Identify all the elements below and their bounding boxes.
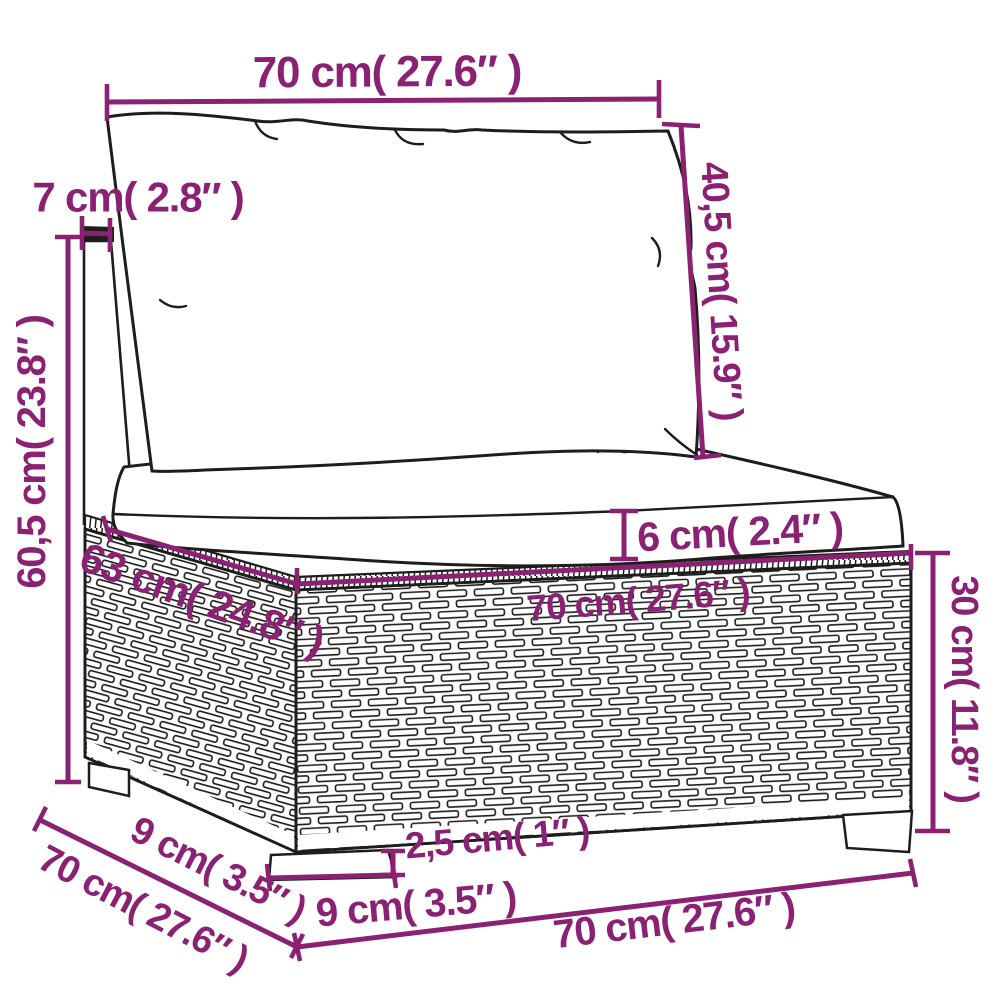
dim-back-height: 60,5 cm( 23.8″ ) bbox=[10, 237, 81, 782]
dim-back-cushion-height-label: 40,5 cm( 15.9″ ) bbox=[692, 161, 750, 422]
dim-base-height-label: 30 cm( 11.8″ ) bbox=[943, 575, 985, 802]
dim-back-height-label: 60,5 cm( 23.8″ ) bbox=[10, 315, 54, 588]
dimension-diagram-page: 70 cm( 27.6″ ) 7 cm( 2.8″ ) 40,5 cm( 15.… bbox=[0, 0, 1000, 1000]
foot-back-left bbox=[89, 763, 129, 796]
dim-top-width: 70 cm( 27.6″ ) bbox=[107, 47, 659, 121]
dim-top-width-label: 70 cm( 27.6″ ) bbox=[253, 47, 522, 98]
dim-bottom-width-label: 70 cm( 27.6″ ) bbox=[551, 885, 797, 957]
dim-base-height: 30 cm( 11.8″ ) bbox=[915, 553, 985, 831]
dimension-diagram: 70 cm( 27.6″ ) 7 cm( 2.8″ ) 40,5 cm( 15.… bbox=[0, 0, 1000, 1000]
back-cushion bbox=[107, 113, 699, 471]
back-cushion-outline bbox=[107, 113, 699, 471]
foot-front-right bbox=[843, 811, 912, 852]
dim-post-thickness-label: 7 cm( 2.8″ ) bbox=[32, 174, 243, 221]
